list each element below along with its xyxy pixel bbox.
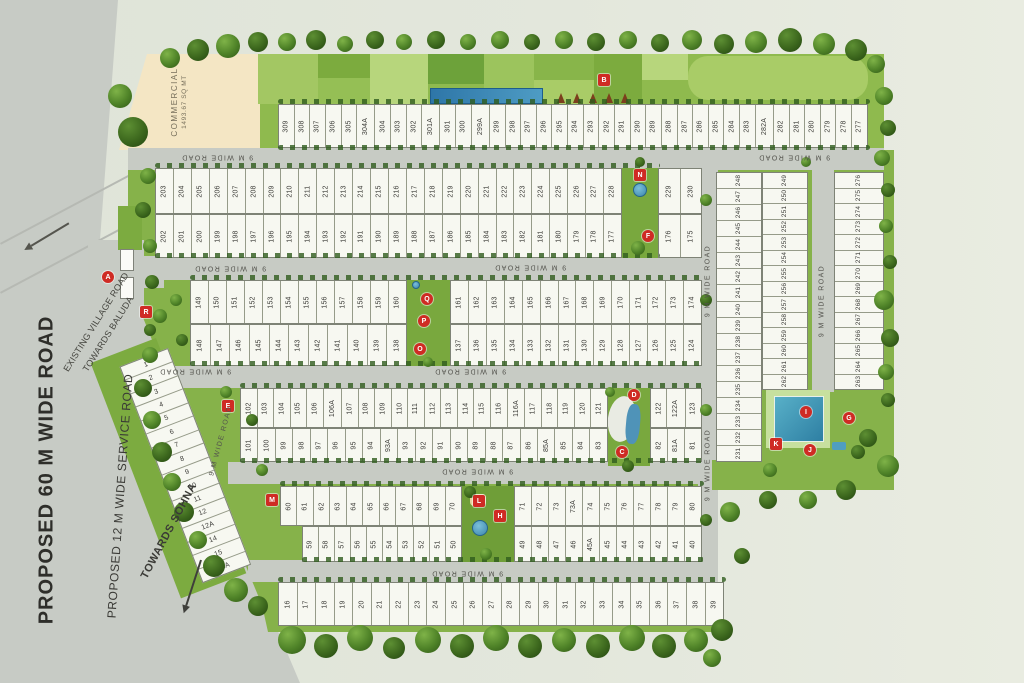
plot-number: 116A — [512, 400, 519, 417]
plot: 108 — [358, 389, 375, 427]
marker-Q: Q — [421, 293, 433, 305]
plot-number: 62 — [318, 502, 325, 510]
plot-number: 238 — [735, 335, 742, 346]
plot-number: 127 — [635, 339, 642, 351]
plot: 176 — [659, 215, 680, 257]
plot-number: 55 — [371, 540, 378, 548]
plot-number: 71 — [520, 502, 527, 510]
plot: 22 — [389, 583, 408, 625]
plot-number: 58 — [323, 540, 330, 548]
plot: 122A — [666, 389, 684, 427]
plot: 124 — [683, 325, 701, 365]
plot: 289 — [645, 105, 661, 147]
tree-icon — [867, 55, 885, 73]
plot: 249 — [763, 173, 807, 188]
plot: 27 — [482, 583, 501, 625]
plot-number: 99 — [281, 441, 288, 449]
plot-number: 8 — [180, 455, 186, 463]
plot: 37 — [667, 583, 686, 625]
plot-number: 81A — [673, 438, 680, 451]
plot-number: 43 — [639, 540, 646, 548]
plot-number: 251 — [781, 206, 788, 217]
plot-number: 217 — [412, 185, 419, 197]
plot-number: 93 — [403, 441, 410, 449]
plot-number: 109 — [379, 402, 386, 414]
plot-number: 80 — [690, 502, 697, 510]
plot-number: 171 — [635, 296, 642, 308]
plot: 278 — [835, 105, 851, 147]
plot: 61 — [296, 487, 312, 525]
plot-number: 36 — [655, 600, 662, 608]
plot-number: 210 — [286, 185, 293, 197]
plot: 144 — [269, 325, 289, 365]
plot-number: 41 — [673, 540, 680, 548]
plot: 60 — [281, 487, 296, 525]
plot: 221 — [478, 169, 496, 213]
plot-number: 7 — [174, 441, 180, 449]
plot-number: 158 — [358, 296, 365, 308]
plot: 143 — [288, 325, 308, 365]
plot-number: 221 — [484, 185, 491, 197]
plot: 193 — [316, 215, 334, 257]
plot-number: 234 — [735, 400, 742, 411]
plot: 70 — [445, 487, 461, 525]
plot-number: 132 — [546, 339, 553, 351]
plot-number: 231 — [735, 448, 742, 459]
plot: 297 — [520, 105, 536, 147]
plot: 190 — [370, 215, 388, 257]
plot-number: 30 — [544, 600, 551, 608]
plot: 281 — [789, 105, 805, 147]
plot-number: 284 — [728, 120, 735, 132]
plot: 106 — [306, 389, 323, 427]
plot-number: 282A — [761, 117, 768, 134]
marker-R: R — [140, 306, 152, 318]
plot: 301 — [439, 105, 455, 147]
plot-number: 249 — [781, 175, 788, 186]
plot-number: 278 — [840, 120, 847, 132]
plot: 285 — [708, 105, 724, 147]
plot: 163 — [486, 281, 504, 323]
road-label: 9 M WIDE ROAD — [434, 368, 506, 375]
plot-number: 52 — [418, 540, 425, 548]
plot: 91 — [432, 429, 449, 461]
hedge-row — [190, 275, 704, 280]
tree-icon — [778, 28, 802, 52]
plot-number: 246 — [735, 207, 742, 218]
plot: 211 — [298, 169, 316, 213]
water-feature — [412, 281, 420, 289]
plot-number: 157 — [340, 296, 347, 308]
plot-number: 145 — [256, 339, 263, 351]
plot-number: 26 — [470, 600, 477, 608]
plot-number: 230 — [687, 185, 694, 197]
tree-icon — [248, 32, 268, 52]
road-label: 9 M WIDE ROAD — [705, 429, 712, 501]
plot-number: 146 — [236, 339, 243, 351]
tree-icon — [881, 329, 899, 347]
plot: 247 — [717, 188, 761, 204]
plot-number: 65 — [367, 502, 374, 510]
plot: 261 — [763, 358, 807, 374]
plot: 282A — [755, 105, 773, 147]
plot: 241 — [717, 284, 761, 300]
plot: 257 — [763, 296, 807, 312]
plot-number: 34 — [618, 600, 625, 608]
tree-icon — [491, 31, 509, 49]
plot-row-102-121: 102103104105106106A107108109110111112113… — [240, 388, 608, 428]
plot: 116A — [507, 389, 525, 427]
plot: 110 — [391, 389, 408, 427]
plot-row-277-309: 309308307306305304A304303302301A30130029… — [278, 104, 868, 148]
plot-number: 121 — [596, 402, 603, 414]
plot: 275 — [835, 188, 883, 204]
plot-number: 266 — [855, 330, 862, 341]
plot: 122 — [651, 389, 666, 427]
plot: 62 — [313, 487, 329, 525]
plot: 272 — [835, 234, 883, 250]
plot-number: 122A — [673, 399, 680, 416]
plot: 64 — [346, 487, 362, 525]
tree-icon — [763, 463, 777, 477]
plot-number: 182 — [519, 230, 526, 242]
plot-number: 92 — [420, 441, 427, 449]
plot-number: 267 — [855, 314, 862, 325]
tree-icon — [700, 514, 712, 526]
tree-icon — [163, 473, 181, 491]
hedge-row — [280, 481, 704, 486]
plot-number: 301A — [427, 117, 434, 134]
marker-I: I — [800, 406, 812, 418]
plot-number: 299A — [477, 117, 484, 134]
plot-number: 271 — [855, 252, 862, 263]
tree-icon — [203, 555, 225, 577]
road-label: 9 M WIDE ROAD — [194, 265, 266, 272]
plot: 290 — [630, 105, 646, 147]
plot: 67 — [395, 487, 411, 525]
road-label: 9 M WIDE ROAD — [441, 468, 513, 475]
tree-icon — [518, 634, 542, 658]
plot-number: 89 — [473, 441, 480, 449]
plot: 244 — [717, 236, 761, 252]
plot-number: 248 — [735, 175, 742, 186]
plot-number: 304 — [379, 120, 386, 132]
plot-number: 268 — [855, 299, 862, 310]
plot: 206 — [209, 169, 227, 213]
plot-number: 118 — [546, 402, 553, 414]
plot-number: 59 — [307, 540, 314, 548]
plot-number: 260 — [781, 345, 788, 356]
plot-number: 17 — [303, 600, 310, 608]
plot-number: 226 — [573, 185, 580, 197]
plot-number: 105 — [295, 402, 302, 414]
plot-number: 106 — [312, 402, 319, 414]
plot: 82 — [651, 429, 667, 461]
plot: 151 — [226, 281, 244, 323]
plot: 26 — [463, 583, 482, 625]
plot-number: 45A — [588, 537, 595, 550]
plot: 280 — [804, 105, 820, 147]
tree-icon — [720, 502, 740, 522]
plot-number: 125 — [671, 339, 678, 351]
plot-number: 100 — [263, 439, 270, 451]
plot: 158 — [352, 281, 370, 323]
plot-number: 187 — [430, 230, 437, 242]
plot: 118 — [541, 389, 558, 427]
plot: 18 — [315, 583, 334, 625]
marker-J: J — [804, 444, 816, 456]
tree-icon — [483, 625, 509, 651]
plot-number: 44 — [622, 540, 629, 548]
tree-icon — [450, 634, 474, 658]
plot-number: 135 — [492, 339, 499, 351]
tree-icon — [248, 596, 268, 616]
plot-number: 169 — [599, 296, 606, 308]
plot: 42 — [650, 527, 667, 561]
plot: 117 — [524, 389, 541, 427]
tree-icon — [108, 84, 132, 108]
plot: 304A — [356, 105, 374, 147]
plot-row-161-174: 1611621631641651661671681691701711721731… — [450, 280, 702, 324]
plot-number: 9 — [185, 468, 191, 476]
tree-icon — [799, 491, 817, 509]
plot: 51 — [429, 527, 445, 561]
plot: 236 — [717, 365, 761, 381]
tree-icon — [143, 239, 157, 253]
plot: 85A — [537, 429, 554, 461]
plot-row-231-248: 2482472462452442432422412402392382372362… — [716, 172, 762, 462]
hedge-row — [240, 458, 704, 463]
plot: 145 — [249, 325, 269, 365]
plot: 125 — [665, 325, 683, 365]
plot-number: 265 — [855, 345, 862, 356]
plot-number: 38 — [692, 600, 699, 608]
plot: 227 — [585, 169, 603, 213]
plot-row-122-123: 122122A123 — [650, 388, 702, 428]
plot-number: 161 — [456, 296, 463, 308]
plot-number: 192 — [340, 230, 347, 242]
plot: 85 — [554, 429, 571, 461]
tree-icon — [415, 627, 441, 653]
plot-number: 74 — [588, 502, 595, 510]
tree-icon — [427, 31, 445, 49]
plot-number: 272 — [855, 237, 862, 248]
plot: 93 — [397, 429, 414, 461]
plot: 301A — [421, 105, 439, 147]
plot-number: 42 — [656, 540, 663, 548]
tree-icon — [587, 33, 605, 51]
tree-icon — [877, 455, 899, 477]
plot: 78 — [650, 487, 667, 525]
plot: 266 — [835, 327, 883, 343]
plot: 220 — [460, 169, 478, 213]
plot: 306 — [325, 105, 341, 147]
tree-icon — [366, 31, 384, 49]
plot-number: 197 — [251, 230, 258, 242]
plot: 162 — [468, 281, 486, 323]
plot: 36 — [649, 583, 668, 625]
marker-G: G — [843, 412, 855, 424]
tree-icon — [524, 34, 540, 50]
green-patch — [318, 54, 370, 78]
plot: 200 — [191, 215, 209, 257]
plot-number: 126 — [653, 339, 660, 351]
plot: 155 — [298, 281, 316, 323]
plot: 165 — [522, 281, 540, 323]
plot: 160 — [388, 281, 406, 323]
plot: 214 — [352, 169, 370, 213]
plot: 59 — [303, 527, 318, 561]
plot: 128 — [611, 325, 629, 365]
plot-number: 67 — [400, 502, 407, 510]
tree-icon — [859, 429, 877, 447]
plot: 284 — [723, 105, 739, 147]
plot: 197 — [245, 215, 263, 257]
plot-number: 110 — [396, 402, 403, 414]
plot-number: 218 — [430, 185, 437, 197]
plot: 180 — [549, 215, 567, 257]
plot: 258 — [763, 312, 807, 328]
plot-number: 232 — [735, 432, 742, 443]
plot-number: 61 — [302, 502, 309, 510]
tree-icon — [423, 357, 433, 367]
plot-number: 302 — [410, 120, 417, 132]
plot: 35 — [630, 583, 649, 625]
plot-number: 40 — [690, 540, 697, 548]
plot: 186 — [442, 215, 460, 257]
plot: 75 — [599, 487, 616, 525]
tree-icon — [383, 637, 405, 659]
plot-number: 193 — [322, 230, 329, 242]
plot: 239 — [717, 317, 761, 333]
plot: 277 — [851, 105, 867, 147]
plot-number: 64 — [351, 502, 358, 510]
plot: 25 — [445, 583, 464, 625]
plot-number: 180 — [555, 230, 562, 242]
plot: 53 — [397, 527, 413, 561]
plot-number: 152 — [250, 296, 257, 308]
tree-icon — [220, 386, 232, 398]
plot: 21 — [371, 583, 390, 625]
plot: 203 — [156, 169, 173, 213]
plot: 216 — [388, 169, 406, 213]
plot: 40 — [684, 527, 701, 561]
hedge-row — [278, 577, 726, 582]
plot: 271 — [835, 250, 883, 266]
plot: 47 — [548, 527, 565, 561]
plot-number: 175 — [687, 230, 694, 242]
plot-number: 165 — [528, 296, 535, 308]
plot: 73A — [565, 487, 582, 525]
plot-number: 91 — [438, 441, 445, 449]
plot: 139 — [367, 325, 387, 365]
green-patch — [712, 460, 812, 490]
plot-number: 212 — [322, 185, 329, 197]
plot-number: 227 — [591, 185, 598, 197]
tree-icon — [652, 634, 676, 658]
plot-number: 263 — [855, 376, 862, 387]
water-feature — [472, 520, 488, 536]
plot: 246 — [717, 204, 761, 220]
plot-row-177-202: 2022012001991981971961951941931921911901… — [155, 214, 622, 258]
plot-number: 35 — [637, 600, 644, 608]
plot: 225 — [549, 169, 567, 213]
plot: 217 — [406, 169, 424, 213]
plot: 120 — [574, 389, 591, 427]
plot: 259 — [763, 327, 807, 343]
tree-icon — [875, 87, 893, 105]
plot-number: 237 — [735, 351, 742, 362]
plot-number: 303 — [395, 120, 402, 132]
plot: 210 — [280, 169, 298, 213]
plot: 274 — [835, 203, 883, 219]
plot: 135 — [486, 325, 504, 365]
plot-number: 209 — [268, 185, 275, 197]
plot-number: 220 — [466, 185, 473, 197]
plot-number: 147 — [216, 339, 223, 351]
tree-icon — [152, 442, 172, 462]
plot: 238 — [717, 333, 761, 349]
plot-number: 154 — [286, 296, 293, 308]
plot-number: 205 — [197, 185, 204, 197]
marker-C: C — [616, 446, 628, 458]
plot-number: 256 — [781, 283, 788, 294]
plot: 208 — [245, 169, 263, 213]
plot-number: 282 — [778, 120, 785, 132]
road-label: PROPOSED 60 M WIDE ROAD — [36, 316, 59, 625]
plot-number: 285 — [713, 120, 720, 132]
plot-number: 144 — [275, 339, 282, 351]
plot-number: 259 — [781, 330, 788, 341]
plot-number: 264 — [855, 361, 862, 372]
plot: 192 — [334, 215, 352, 257]
plot: 147 — [210, 325, 230, 365]
marker-L: L — [473, 495, 485, 507]
plot-number: 254 — [781, 252, 788, 263]
plot-number: 170 — [617, 296, 624, 308]
tree-icon — [883, 255, 897, 269]
plot: 20 — [352, 583, 371, 625]
plot: 123 — [685, 389, 701, 427]
road-label: 9 M WIDE ROAD — [181, 154, 253, 161]
plot-number: 11 — [193, 495, 203, 504]
plot: 149 — [191, 281, 208, 323]
tree-icon — [278, 626, 306, 654]
plot-number: 37 — [674, 600, 681, 608]
plot-number: 186 — [448, 230, 455, 242]
plot: 231 — [717, 445, 761, 461]
plot-number: 296 — [541, 120, 548, 132]
plot: 114 — [457, 389, 474, 427]
plot-number: 66 — [384, 502, 391, 510]
plot-row-149-160: 149150151152153154155156157158159160 — [190, 280, 407, 324]
tree-icon — [216, 34, 240, 58]
plot: 116 — [490, 389, 507, 427]
marker-H: H — [494, 510, 506, 522]
plot-number: 245 — [735, 223, 742, 234]
plot-number: 51 — [434, 540, 441, 548]
plot-number: 32 — [581, 600, 588, 608]
plot-number: 73A — [571, 499, 578, 512]
plot-number: 48 — [537, 540, 544, 548]
plot-number: 288 — [666, 120, 673, 132]
plot-row-60-70: 6061626364656667686970 — [280, 486, 462, 526]
swimming-pool — [774, 396, 824, 442]
plot: 86 — [520, 429, 537, 461]
plot-row-16-39: 1617181920212223242526272829303132333435… — [278, 582, 724, 626]
plot-row-203-228: 2032042052062072082092102112122132142152… — [155, 168, 622, 214]
plot: 50 — [445, 527, 461, 561]
